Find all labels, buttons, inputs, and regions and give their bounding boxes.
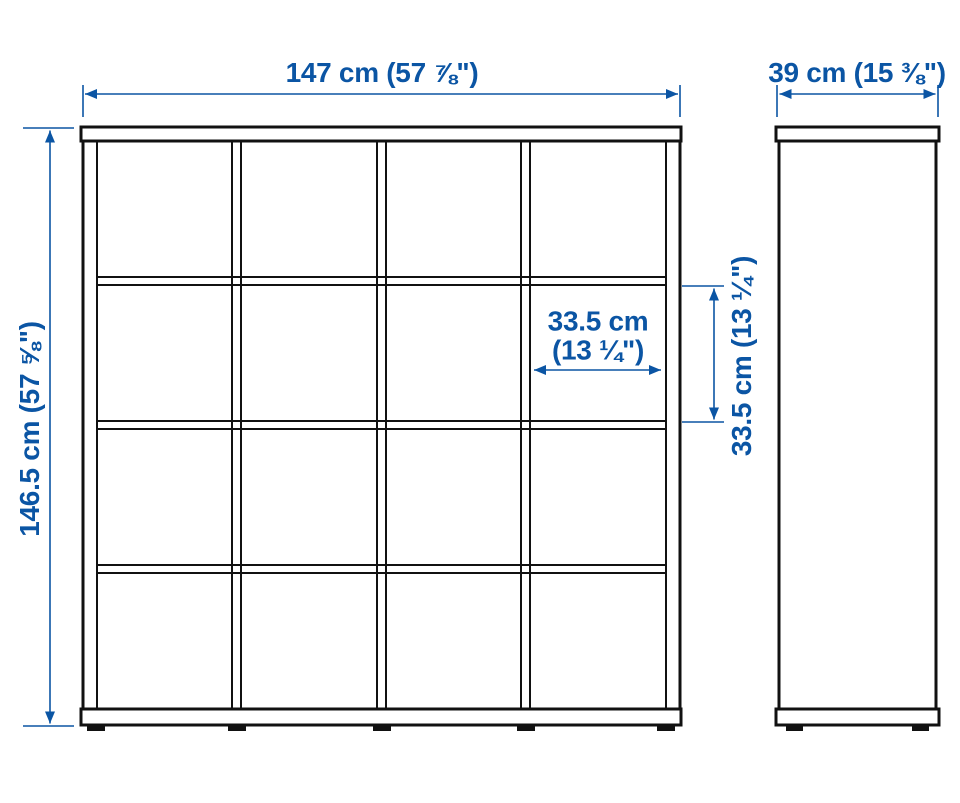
front-foot-4 xyxy=(517,725,535,731)
side-bottom-board xyxy=(776,709,939,725)
overall-width-label: 147 cm (57 ⅞") xyxy=(286,59,479,87)
front-foot-5 xyxy=(657,725,675,731)
side-foot-1 xyxy=(786,725,803,731)
cell-width-label: 33.5 cm (13 ¼") xyxy=(548,307,649,366)
front-bottom-board xyxy=(81,709,681,725)
side-foot-2 xyxy=(912,725,929,731)
front-foot-2 xyxy=(228,725,246,731)
dim-depth xyxy=(777,85,938,117)
cell-height-label: 33.5 cm (13 ¼") xyxy=(728,256,756,456)
dim-overall-width xyxy=(83,85,680,117)
front-view xyxy=(81,127,681,731)
side-body xyxy=(779,141,936,709)
furniture-dimension-diagram: 147 cm (57 ⅞") 39 cm (15 ⅜") 146.5 cm (5… xyxy=(0,0,960,803)
dim-cell-height xyxy=(682,286,724,422)
front-body xyxy=(83,141,680,709)
depth-label: 39 cm (15 ⅜") xyxy=(768,59,945,87)
front-foot-3 xyxy=(373,725,391,731)
side-view xyxy=(776,127,939,731)
diagram-canvas xyxy=(0,0,960,803)
side-top-board xyxy=(776,127,939,141)
cell-width-label-line1: 33.5 cm xyxy=(548,307,649,336)
front-top-board xyxy=(81,127,681,141)
overall-height-label: 146.5 cm (57 ⅝") xyxy=(16,321,44,537)
cell-width-label-line2: (13 ¼") xyxy=(552,336,644,365)
front-foot-1 xyxy=(87,725,105,731)
